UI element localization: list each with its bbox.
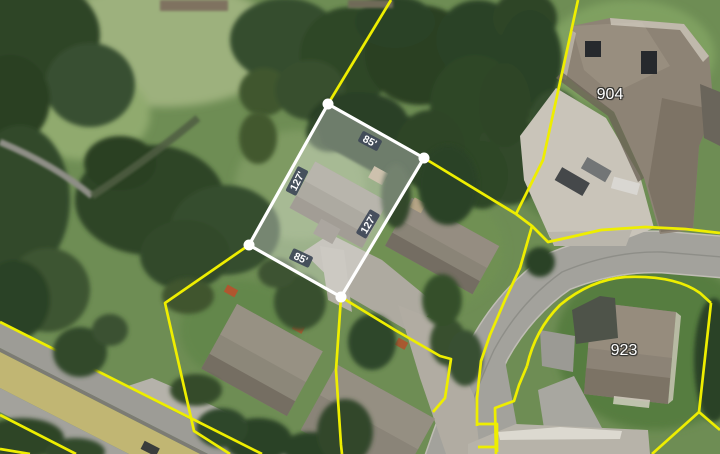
- svg-text:923: 923: [611, 342, 638, 359]
- svg-text:904: 904: [597, 86, 624, 103]
